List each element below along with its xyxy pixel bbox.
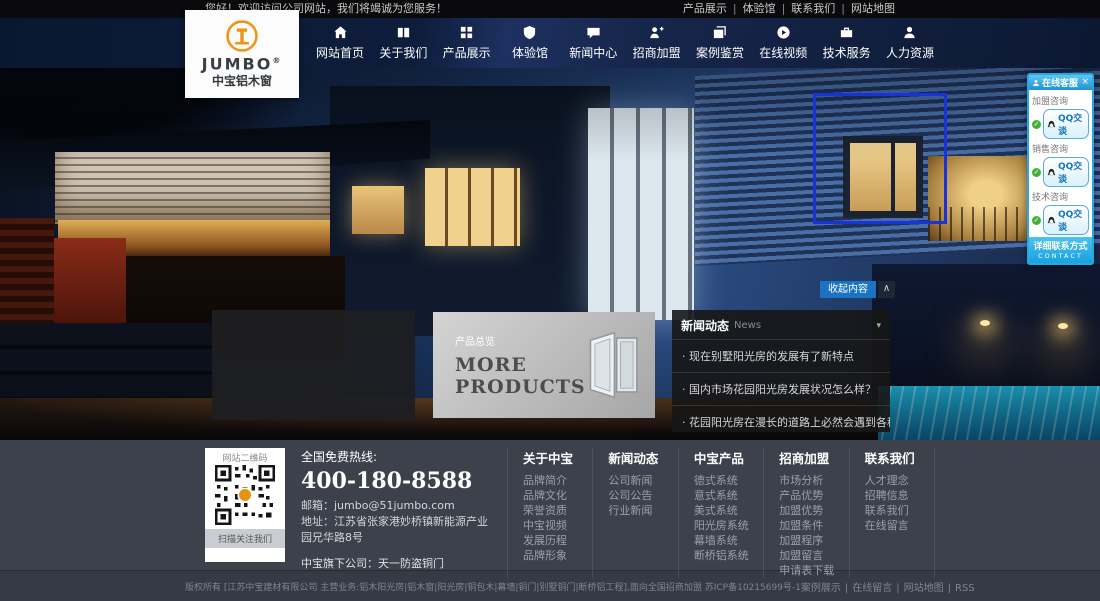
footer-link[interactable]: 中宝视频 <box>523 518 592 533</box>
separator: | <box>845 583 848 594</box>
footer-link[interactable]: 德式系统 <box>694 473 763 488</box>
footer-link[interactable]: 联系我们 <box>865 503 934 518</box>
products-overview-label: 产品总览 <box>455 333 586 348</box>
footer-link[interactable]: 品牌文化 <box>523 488 592 503</box>
nav-item-hr[interactable]: 人力资源 <box>885 18 935 68</box>
highlight-selection-box <box>813 93 947 224</box>
nav-item-products[interactable]: 产品展示 <box>442 18 492 68</box>
news-item[interactable]: · 现在别墅阳光房的发展有了新特点 <box>672 339 890 372</box>
bottom-link-sitemap[interactable]: 网站地图 <box>904 583 944 594</box>
footer-link[interactable]: 加盟优势 <box>779 503 848 518</box>
qr-code <box>215 465 275 525</box>
logo-brand: JUMBO <box>202 54 273 73</box>
grid-icon <box>459 25 474 40</box>
online-status-icon: ✓ <box>1032 120 1041 129</box>
qq-chat-button[interactable]: QQ交谈 <box>1043 205 1089 235</box>
chevron-down-icon[interactable]: ▾ <box>876 321 881 331</box>
online-service-title: 在线客服 <box>1042 76 1078 89</box>
hotline-number: 400-180-8588 <box>301 468 497 494</box>
nav-label: 新闻中心 <box>569 44 617 61</box>
person-icon <box>1032 79 1040 87</box>
jumbo-website-page: 您好！欢迎访问公司网站，我们将竭诚为您服务！ 产品展示|体验馆|联系我们|网站地… <box>0 0 1100 601</box>
contact-info-block: 全国免费热线: 400-180-8588 邮箱：jumbo@51jumbo.co… <box>301 448 497 578</box>
close-icon[interactable]: × <box>1081 78 1089 87</box>
bottom-link-message[interactable]: 在线留言 <box>852 583 892 594</box>
footer-column-title: 联系我们 <box>865 448 934 467</box>
open-window-image <box>586 322 641 408</box>
more-text: MORE <box>455 354 527 376</box>
book-icon <box>396 25 411 40</box>
footer-link[interactable]: 人才理念 <box>865 473 934 488</box>
footer-link[interactable]: 加盟留言 <box>779 548 848 563</box>
footer-link[interactable]: 意式系统 <box>694 488 763 503</box>
top-utility-bar: 您好！欢迎访问公司网站，我们将竭诚为您服务！ 产品展示|体验馆|联系我们|网站地… <box>0 0 1100 18</box>
qq-penguin-icon <box>1047 215 1056 226</box>
qq-chat-button[interactable]: QQ交谈 <box>1043 157 1089 187</box>
separator: | <box>948 583 951 594</box>
footer-link[interactable]: 公司公告 <box>608 488 677 503</box>
footer-link[interactable]: 招聘信息 <box>865 488 934 503</box>
footer-link[interactable]: 行业新闻 <box>608 503 677 518</box>
shield-icon <box>522 25 537 40</box>
qr-code-title: 网站二维码 <box>205 448 285 465</box>
contact-details-button[interactable]: 详细联系方式 CONTACT <box>1029 237 1092 263</box>
chevron-up-icon[interactable]: ∧ <box>878 281 895 298</box>
footer-link[interactable]: 品牌简介 <box>523 473 592 488</box>
online-status-icon: ✓ <box>1032 168 1041 177</box>
nav-label: 在线视频 <box>759 44 807 61</box>
footer-link[interactable]: 阳光房系统 <box>694 518 763 533</box>
briefcase-icon <box>839 25 854 40</box>
nav-item-home[interactable]: 网站首页 <box>315 18 365 68</box>
footer-link-columns: 关于中宝 品牌简介 品牌文化 荣誉资质 中宝视频 发展历程 品牌形象 新闻动态 … <box>507 448 935 578</box>
nav-label: 体验馆 <box>512 44 548 61</box>
bottom-link-cases[interactable]: 案例展示 <box>801 583 841 594</box>
footer-link[interactable]: 在线留言 <box>865 518 934 533</box>
footer-link[interactable]: 产品优势 <box>779 488 848 503</box>
footer-column-products: 中宝产品 德式系统 意式系统 美式系统 阳光房系统 幕墙系统 断桥铝系统 <box>678 448 763 578</box>
service-group-label: 加盟咨询 <box>1032 94 1089 107</box>
main-navigation-bar: 网站首页 关于我们 产品展示 体验馆 新闻中心 招商加盟 案例鉴赏 在线视频 技… <box>0 18 1100 68</box>
news-panel-subtitle: News <box>734 320 761 331</box>
footer-link[interactable]: 幕墙系统 <box>694 533 763 548</box>
footer-column-title: 关于中宝 <box>523 448 592 467</box>
footer-link[interactable]: 加盟程序 <box>779 533 848 548</box>
nav-item-about[interactable]: 关于我们 <box>378 18 428 68</box>
footer-link[interactable]: 美式系统 <box>694 503 763 518</box>
top-link-products[interactable]: 产品展示 <box>683 2 727 15</box>
nav-label: 招商加盟 <box>633 44 681 61</box>
footer-column-franchise: 招商加盟 市场分析 产品优势 加盟优势 加盟条件 加盟程序 加盟留言 申请表下载 <box>763 448 848 578</box>
qq-chat-label: QQ交谈 <box>1058 159 1085 185</box>
news-panel-title: 新闻动态 <box>681 317 729 334</box>
address-line: 地址：江苏省张家港妙桥镇新能源产业园兄华路8号 <box>301 514 497 546</box>
company-logo[interactable]: JUMBO® 中宝铝木窗 <box>185 10 299 98</box>
nav-label: 产品展示 <box>443 44 491 61</box>
service-group-label: 技术咨询 <box>1032 190 1089 203</box>
logo-emblem-icon <box>225 19 259 53</box>
footer-column-title: 新闻动态 <box>608 448 677 467</box>
footer-link[interactable]: 市场分析 <box>779 473 848 488</box>
nav-item-tech-service[interactable]: 技术服务 <box>822 18 872 68</box>
footer-column-title: 招商加盟 <box>779 448 848 467</box>
registered-mark: ® <box>272 56 282 65</box>
separator: | <box>896 583 899 594</box>
nav-label: 技术服务 <box>823 44 871 61</box>
subsidiary-line: 中宝旗下公司：天一防盗铜门 <box>301 555 497 571</box>
user-icon <box>902 25 917 40</box>
nav-item-cases[interactable]: 案例鉴赏 <box>695 18 745 68</box>
nav-label: 案例鉴赏 <box>696 44 744 61</box>
footer-link[interactable]: 荣誉资质 <box>523 503 592 518</box>
qr-code-card: 网站二维码 扫描关注我们 <box>205 448 285 562</box>
email-line: 邮箱：jumbo@51jumbo.com <box>301 498 497 514</box>
hotline-label: 全国免费热线: <box>301 448 497 465</box>
qq-chat-label: QQ交谈 <box>1058 111 1085 137</box>
service-group-label: 销售咨询 <box>1032 142 1089 155</box>
news-item[interactable]: · 国内市场花园阳光房发展状况怎么样？ <box>672 372 890 405</box>
bottom-links: 案例展示|在线留言|网站地图|RSS <box>801 579 975 594</box>
qr-code-caption: 扫描关注我们 <box>205 529 285 548</box>
separator: | <box>841 2 845 15</box>
photos-icon <box>712 25 727 40</box>
chat-icon <box>586 25 601 40</box>
contact-details-label: 详细联系方式 <box>1029 239 1092 252</box>
logo-brand-text: JUMBO® <box>202 53 283 71</box>
news-item[interactable]: · 花园阳光房在漫长的道路上必然会遇到各种挑战 <box>672 405 890 438</box>
online-status-icon: ✓ <box>1032 216 1041 225</box>
collapse-content-button[interactable]: 收起内容 <box>820 281 876 298</box>
qq-penguin-icon <box>1047 119 1056 130</box>
footer-link[interactable]: 申请表下载 <box>779 563 848 578</box>
product-slide-dark-panel[interactable] <box>212 310 415 420</box>
footer-link[interactable]: 发展历程 <box>523 533 592 548</box>
footer-link[interactable]: 加盟条件 <box>779 518 848 533</box>
user-plus-icon <box>649 25 664 40</box>
site-footer: 网站二维码 扫描关注我们 全国免费热线: 400-180-8588 <box>0 440 1100 570</box>
top-link-sitemap[interactable]: 网站地图 <box>851 2 895 15</box>
more-products-title: MORE PRODUCTS <box>455 354 586 398</box>
nav-item-franchise[interactable]: 招商加盟 <box>632 18 682 68</box>
qq-chat-button[interactable]: QQ交谈 <box>1043 109 1089 139</box>
top-links: 产品展示|体验馆|联系我们|网站地图 <box>683 0 895 18</box>
top-link-showroom[interactable]: 体验馆 <box>743 2 776 15</box>
qq-chat-label: QQ交谈 <box>1058 207 1085 233</box>
separator: | <box>782 2 786 15</box>
nav-label: 网站首页 <box>316 44 364 61</box>
footer-link[interactable]: 断桥铝系统 <box>694 548 763 563</box>
footer-column-contact: 联系我们 人才理念 招聘信息 联系我们 在线留言 <box>849 448 935 578</box>
products-text: PRODUCTS <box>455 376 586 398</box>
footer-column-news: 新闻动态 公司新闻 公司公告 行业新闻 <box>592 448 677 578</box>
copyright-text: 版权所有 [江苏中宝建材有限公司 主营业务:铝木阳光房|铝木窗|阳光房|铜包木|… <box>185 580 801 593</box>
bottom-link-rss[interactable]: RSS <box>955 583 975 594</box>
nav-item-news[interactable]: 新闻中心 <box>568 18 618 68</box>
footer-link[interactable]: 公司新闻 <box>608 473 677 488</box>
nav-item-showroom[interactable]: 体验馆 <box>505 18 555 68</box>
more-products-panel[interactable]: 产品总览 MORE PRODUCTS <box>433 312 655 418</box>
nav-label: 人力资源 <box>886 44 934 61</box>
footer-link[interactable]: 品牌形象 <box>523 548 592 563</box>
footer-column-about: 关于中宝 品牌简介 品牌文化 荣誉资质 中宝视频 发展历程 品牌形象 <box>507 448 592 578</box>
hero-banner: 产品总览 MORE PRODUCTS 新闻动态 News ▾ · 现在别墅阳光房… <box>0 68 1100 440</box>
top-link-contact[interactable]: 联系我们 <box>791 2 835 15</box>
online-service-panel: 在线客服 × 加盟咨询 ✓ QQ交谈 销售咨询 ✓ QQ交谈 技术咨询 ✓ QQ… <box>1027 73 1094 265</box>
play-icon <box>776 25 791 40</box>
home-icon <box>333 25 348 40</box>
separator: | <box>733 2 737 15</box>
nav-item-videos[interactable]: 在线视频 <box>758 18 808 68</box>
qq-penguin-icon <box>1047 167 1056 178</box>
contact-details-en: CONTACT <box>1029 252 1092 260</box>
news-panel: 新闻动态 News ▾ · 现在别墅阳光房的发展有了新特点 · 国内市场花园阳光… <box>672 310 890 432</box>
nav-label: 关于我们 <box>379 44 427 61</box>
footer-column-title: 中宝产品 <box>694 448 763 467</box>
logo-subtitle: 中宝铝木窗 <box>212 72 272 89</box>
